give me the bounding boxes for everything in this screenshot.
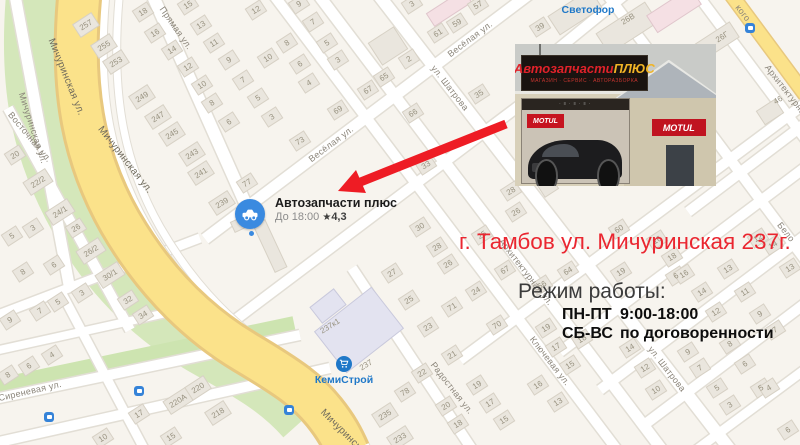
building [160, 427, 181, 445]
building [232, 70, 253, 90]
photo-inset: АвтозапчастиПЛЮС МАГАЗИН · СЕРВИС · АВТО… [515, 44, 716, 186]
building [188, 161, 215, 186]
poi-hours: До 18:00 [275, 211, 319, 223]
bus-stop-icon[interactable] [745, 23, 755, 33]
schedule-row-weekdays: ПН-ПТ9:00-18:00 [562, 305, 774, 324]
building [777, 420, 798, 440]
building [145, 105, 172, 130]
building [1, 226, 22, 246]
bus-stop-icon[interactable] [284, 405, 294, 415]
building [129, 85, 156, 110]
schedule-rows: ПН-ПТ9:00-18:00 СБ-ВСпо договоренности [562, 305, 774, 343]
store-sign: АвтозапчастиПЛЮС МАГАЗИН · СЕРВИС · АВТО… [521, 55, 648, 91]
car-icon [240, 206, 260, 222]
pin-anchor-dot [249, 231, 254, 236]
building [253, 220, 287, 273]
building [381, 263, 402, 283]
building [717, 259, 738, 279]
building [205, 401, 232, 426]
building [779, 258, 800, 278]
car-wheel [535, 159, 558, 186]
building [529, 17, 550, 37]
building [12, 262, 33, 282]
building [298, 73, 319, 93]
building [427, 23, 448, 43]
shop-poi-icon[interactable] [336, 356, 352, 372]
building [426, 237, 447, 257]
building [398, 290, 419, 310]
building [387, 426, 414, 445]
bus-stop-icon[interactable] [134, 386, 144, 396]
building [218, 50, 239, 70]
building [257, 48, 278, 68]
building [218, 112, 239, 132]
building [465, 281, 486, 301]
building [417, 317, 438, 337]
poi-subtitle: До 18:00 ★4,3 [275, 211, 397, 223]
building [289, 54, 310, 74]
building [177, 0, 198, 15]
poi-rating: 4,3 [331, 211, 346, 223]
bus-stop-icon[interactable] [44, 412, 54, 422]
building [467, 0, 488, 15]
building [92, 428, 113, 445]
poi-name-label[interactable]: КемиСтрой [315, 374, 373, 386]
building [372, 403, 399, 428]
building [401, 0, 422, 14]
building [479, 393, 500, 413]
store-door [666, 145, 694, 186]
building [547, 392, 568, 412]
poi-title[interactable]: Автозапчасти плюс [275, 196, 397, 210]
store-sign-title: АвтозапчастиПЛЮС [515, 62, 655, 76]
building [357, 80, 378, 100]
building [203, 33, 224, 53]
building [691, 282, 712, 302]
building [41, 345, 62, 365]
building [647, 0, 702, 33]
building [276, 33, 297, 53]
cart-icon [339, 359, 349, 369]
motul-banner: · ≡ · ≡ · ≡ · MOTUL [521, 98, 630, 184]
building [468, 84, 489, 104]
building [245, 0, 266, 20]
banner-top-strip: · ≡ · ≡ · ≡ · [522, 99, 629, 110]
motul-wall-sign: MOTUL [652, 119, 706, 136]
store-sign-subtitle: МАГАЗИН · СЕРВИС · АВТОРАЗБОРКА [531, 78, 639, 84]
building [22, 218, 43, 238]
motul-logo: MOTUL [527, 114, 563, 128]
building [179, 142, 206, 167]
building [441, 345, 462, 365]
building [527, 375, 548, 395]
car-service-pin[interactable] [235, 199, 265, 229]
building [159, 122, 186, 147]
map-app[interactable]: 2572552532492472452432412397718161412108… [0, 0, 800, 445]
car-wheel [597, 159, 620, 186]
building [289, 131, 310, 151]
building [190, 15, 211, 35]
building [247, 88, 268, 108]
address-annotation: г. Тамбов ул. Мичуринская 237г. [459, 229, 791, 255]
building [466, 375, 487, 395]
building [261, 107, 282, 127]
schedule-row-weekend: СБ-ВСпо договоренности [562, 324, 774, 343]
building [645, 380, 666, 400]
poi-card[interactable]: Автозапчасти плюс До 18:00 ★4,3 [275, 196, 397, 223]
schedule-title: Режим работы: [518, 280, 666, 304]
building [437, 254, 458, 274]
building [493, 410, 514, 430]
building [441, 297, 462, 317]
building [409, 217, 430, 237]
building [677, 342, 698, 362]
building [505, 202, 526, 222]
building [394, 382, 415, 402]
poi-name-label[interactable]: Светофор [562, 4, 615, 16]
rating-star-icon: ★ [322, 212, 331, 223]
building [327, 100, 348, 120]
